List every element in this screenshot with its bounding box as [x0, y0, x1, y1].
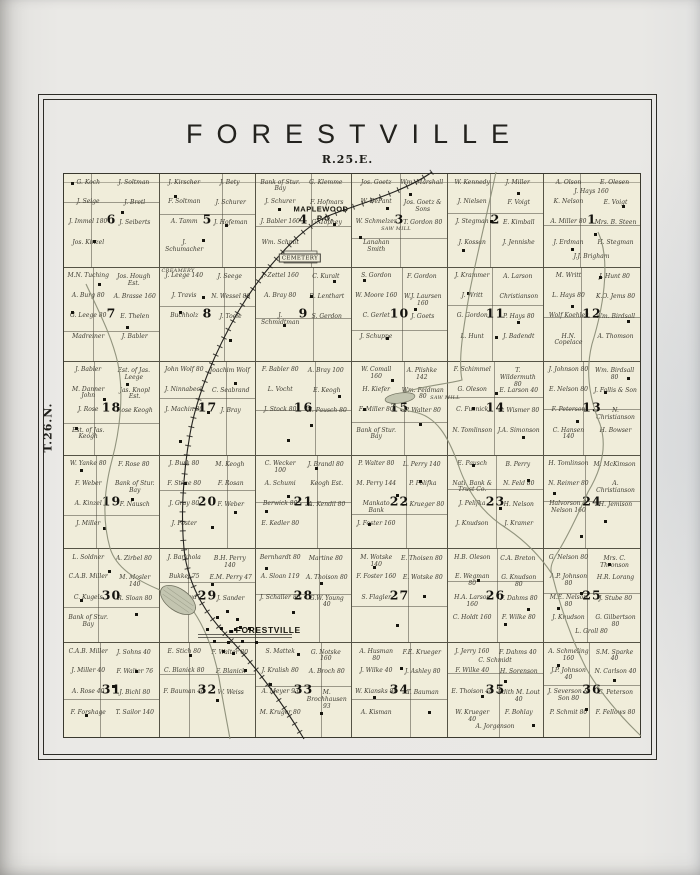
section-cell-32[interactable]: 32E. Stich 80F. Walter 80C. Blanick 80F.…: [160, 643, 256, 737]
section-cell-13[interactable]: 13J. Johnson 80Wm. Birdsall 80E. Nelson …: [544, 362, 640, 456]
landowner-label: Jos. Hough Est.: [112, 274, 155, 287]
parcel-line: [448, 397, 543, 398]
building-marker: [571, 248, 574, 251]
landowner-label: C. Schmidt: [474, 658, 517, 665]
section-cell-24[interactable]: 24H. TomlinsonM. McKimsonN. Reimer 80A. …: [544, 456, 640, 550]
building-marker: [126, 326, 129, 329]
landowner-label: A.P. Johnson 80: [547, 574, 590, 587]
parcel-line: [64, 423, 159, 424]
building-marker: [428, 711, 431, 714]
landowner-label: J. Babler 160: [259, 219, 302, 226]
section-number: 21: [294, 493, 313, 508]
parcel-line: [352, 330, 447, 331]
landowner-label: P. Polifka: [401, 481, 444, 488]
building-marker: [467, 292, 470, 295]
landowner-label: Bukkel 75: [163, 574, 206, 581]
section-number: 8: [203, 306, 213, 321]
parcel-line: [160, 490, 255, 491]
building-marker: [368, 523, 371, 526]
section-cell-34[interactable]: 34A. Husman 80F.E. KruegerJ. Wilke 40J. …: [352, 643, 448, 737]
building-marker: [202, 296, 205, 299]
landowner-label: A. Schumi: [259, 481, 302, 488]
landowner-label: Bernhardt 80: [259, 555, 302, 562]
landowner-label: L. Vocht: [259, 387, 302, 394]
building-marker: [338, 395, 341, 398]
landowner-label: J. Brandl 80: [304, 462, 347, 469]
landowner-label: J. Krammer: [451, 273, 494, 280]
section-number: 6: [107, 212, 117, 227]
landowner-label: F. Soltman: [163, 199, 206, 206]
landowner-label: A. Plishke 142: [400, 368, 443, 381]
landowner-label: J. Hays 160: [570, 189, 613, 196]
poi-label-forestville: FORESTVILLE: [229, 625, 301, 635]
landowner-label: C.A.B. Miller: [67, 649, 110, 656]
landowner-label: J. Ninnabeck: [163, 387, 206, 394]
landowner-label: F. Rosan: [209, 481, 252, 488]
landowner-label: M. Kruger 80: [259, 710, 302, 717]
landowner-label: F. Babler 80: [259, 367, 302, 374]
landowner-label: M. Keogh: [208, 462, 251, 469]
landowner-label: J. Seige: [67, 199, 110, 206]
landowner-label: J.P. Johnson 40: [547, 668, 590, 681]
building-marker: [85, 714, 88, 717]
landowner-label: J. Immel 180: [67, 219, 110, 226]
landowner-label: G. Klemme: [304, 180, 347, 187]
section-number: 13: [582, 399, 601, 414]
section-number: 32: [198, 681, 217, 696]
section-cell-8[interactable]: 8J. Leege 140J. SeegeJ. TravisN. Wessel …: [160, 268, 256, 362]
landowner-label: W. Yanke 80: [67, 461, 110, 468]
building-marker: [265, 567, 268, 570]
landowner-label: E. Nelson 80: [547, 387, 590, 394]
section-number: 4: [299, 212, 309, 227]
building-marker: [283, 324, 286, 327]
building-marker: [179, 311, 182, 314]
landowner-label: A. Schmeling 160: [547, 649, 590, 662]
building-marker: [409, 193, 412, 196]
landowner-label: Mrs. B. Steen: [594, 220, 637, 227]
section-cell-36[interactable]: 36A. Schmeling 160S.M. Sparke 40J.P. Joh…: [544, 643, 640, 737]
landowner-label: H.R. Lorang: [594, 575, 637, 582]
landowner-label: Bank of Stur. Bay: [67, 615, 110, 628]
landowner-label: F. Wilke 80: [497, 615, 540, 622]
section-cell-15[interactable]: 15W. Comall 160A. Plishke 142H. KieferWm…: [352, 362, 448, 456]
building-marker: [75, 427, 78, 430]
landowner-label: J. Hofeman: [209, 220, 252, 227]
landowner-label: F.E. Krueger: [400, 650, 443, 657]
section-number: 36: [582, 681, 601, 696]
landowner-label: C. Blanick 80: [163, 668, 206, 675]
township-label: T.26.N.: [42, 393, 55, 463]
landowner-label: W. Kennedy: [451, 180, 494, 187]
landowner-label: W. Moore 160: [355, 293, 398, 300]
building-marker: [80, 599, 83, 602]
landowner-label: J. Ashley 80: [401, 669, 444, 676]
section-cell-20[interactable]: 20J. Burk 80M. KeoghF. Stilze 80F. Rosan…: [160, 456, 256, 550]
landowner-label: M. Writt: [547, 273, 590, 280]
building-marker: [71, 182, 74, 185]
building-marker: [80, 469, 83, 472]
landowner-label: E.M. Perry 47: [209, 575, 252, 582]
landowner-label: L. Groll 80: [570, 629, 613, 636]
landowner-label: E. Wotske 80: [401, 575, 444, 582]
building-marker: [396, 624, 399, 627]
building-marker: [320, 712, 323, 715]
building-marker: [184, 482, 187, 485]
section-cell-3[interactable]: 3Jos. GoetzWm. MarshallW. DeFantJos. Goe…: [352, 174, 448, 268]
building-marker: [225, 224, 228, 227]
landowner-label: N. Carlson 40: [594, 669, 637, 676]
building-marker: [580, 535, 583, 538]
parcel-line: [64, 331, 159, 332]
landowner-label: T. Sailor 140: [113, 710, 156, 717]
landowner-label: F. Voigt: [497, 200, 540, 207]
building-marker: [472, 464, 475, 467]
section-cell-14[interactable]: 14F. SchimmelT. Wildermuth 80G. OlesonE.…: [448, 362, 544, 456]
landowner-label: A. Bray 100: [304, 368, 347, 375]
landowner-label: H.N. Copelace: [547, 334, 590, 347]
building-marker: [481, 695, 484, 698]
landowner-label: M. Perry 144: [355, 481, 398, 488]
landowner-label: F. Schimmel: [451, 367, 494, 374]
landowner-label: S. Mattek: [259, 649, 302, 656]
building-marker: [211, 583, 214, 586]
section-cell-25[interactable]: 25G. Nelson 80Mrs. C. ThronsonA.P. Johns…: [544, 549, 640, 643]
landowner-label: Mrs. C. Thronson: [593, 556, 636, 569]
section-number: 25: [582, 587, 601, 602]
building-marker: [287, 495, 290, 498]
landowner-label: J. Toele: [209, 314, 252, 321]
landowner-label: M. McKimson: [593, 462, 636, 469]
building-marker: [495, 336, 498, 339]
section-cell-2[interactable]: 2W. KennedyJ. MillerJ. NielsenF. VoigtJ.…: [448, 174, 544, 268]
building-marker: [532, 724, 535, 727]
landowner-label: Bank of Stur. Bay: [259, 180, 302, 193]
parcel-line: [352, 422, 447, 423]
landowner-label: C. Kuralt: [304, 274, 347, 281]
section-number: 5: [203, 212, 213, 227]
building-marker: [627, 377, 630, 380]
landowner-label: A. Larson: [496, 274, 539, 281]
landowner-label: E. Keogh: [305, 388, 348, 395]
landowner-label: A. Tamm: [163, 219, 206, 226]
section-number: 9: [299, 306, 309, 321]
building-marker: [419, 480, 422, 483]
landowner-label: F. Weber: [67, 481, 110, 488]
landowner-label: J. Stegman: [451, 219, 494, 226]
building-marker: [386, 337, 389, 340]
landowner-label: S.M. Sparke 40: [593, 650, 636, 663]
landowner-label: E. Kedler 80: [259, 521, 302, 528]
landowner-label: A. Olson: [547, 180, 590, 187]
building-marker: [557, 664, 560, 667]
landowner-label: W. DeFant: [355, 199, 398, 206]
building-marker: [517, 321, 520, 324]
landowner-label: Buchholz: [163, 313, 206, 320]
landowner-label: C.A. Breton: [496, 556, 539, 563]
landowner-label: A. Bray 80: [259, 293, 302, 300]
section-cell-12[interactable]: 12M. WrittJ. Hunt 80L. Hays 80K.O. Jems …: [544, 268, 640, 362]
landowner-label: J. Knudson: [451, 521, 494, 528]
map-title: FORESTVILLE: [39, 119, 656, 150]
landowner-label: K.O. Jems 80: [594, 294, 637, 301]
building-marker: [315, 467, 318, 470]
section-cell-7[interactable]: 7M.N. TuchingJos. Hough Est.A. Burg 80A.…: [64, 268, 160, 362]
building-marker: [174, 195, 177, 198]
landowner-label: E. Kimball: [497, 220, 540, 227]
building-marker: [585, 708, 588, 711]
landowner-label: J. Schmidtman: [259, 313, 302, 326]
landowner-label: J. Seiberts: [113, 220, 156, 227]
landowner-label: W. Krueger 40: [451, 710, 494, 723]
landowner-label: J. Zettel 160: [259, 273, 302, 280]
landowner-label: J. Kirscher: [163, 180, 206, 187]
building-marker: [320, 582, 323, 585]
landowner-label: F. Foster 160: [355, 574, 398, 581]
building-marker: [126, 383, 129, 386]
section-cell-9[interactable]: 9J. Zettel 160C. KuraltA. Bray 80R. Lent…: [256, 268, 352, 362]
scanned-atlas-page: FORESTVILLE R.25.E. T.26.N. 6G. KochJ. S…: [0, 0, 700, 875]
landowner-label: F. Dahms 40: [496, 650, 539, 657]
section-cell-19[interactable]: 19W. Yanke 80F. Rose 80F. WeberBank of S…: [64, 456, 160, 550]
poi-label-saw-mill: SAW MILL: [430, 395, 460, 401]
building-marker: [594, 233, 597, 236]
landowner-label: J. Badendt: [497, 334, 540, 341]
landowner-label: F. Fellows 80: [594, 710, 637, 717]
landowner-label: L. Hays 80: [547, 293, 590, 300]
building-marker: [517, 192, 520, 195]
building-marker: [576, 420, 579, 423]
building-marker: [359, 236, 362, 239]
landowner-label: E. Stich 80: [163, 649, 206, 656]
landowner-label: A. Kisman: [355, 710, 398, 717]
section-cell-1[interactable]: 1A. OlsonE. OlesenK. NelsonE. VoigtA. Mi…: [544, 174, 640, 268]
section-cell-17[interactable]: 17John Wolf 80Joachim WolfJ. NinnabeckC.…: [160, 362, 256, 456]
building-marker: [292, 611, 295, 614]
landowner-label: Martine 80: [304, 556, 347, 563]
section-cell-23[interactable]: 23E. PauschB. PerryNatl. Bank & Trust Co…: [448, 456, 544, 550]
building-marker: [189, 654, 192, 657]
building-marker: [571, 305, 574, 308]
landowner-label: Wm. Schmit: [259, 240, 302, 247]
landowner-label: J. Schuppe: [355, 334, 398, 341]
building-marker: [495, 392, 498, 395]
landowner-label: J. Kralish 80: [259, 668, 302, 675]
section-number: 26: [486, 587, 505, 602]
landowner-label: B.H. Perry 140: [208, 556, 251, 569]
section-number: 10: [390, 306, 409, 321]
landowner-label: J. Barkhola: [163, 555, 206, 562]
landowner-label: J. Jerry 160: [451, 649, 494, 656]
section-cell-5[interactable]: 5J. KirscherJ. BetyF. SoltmanJ. SchurerA…: [160, 174, 256, 268]
building-marker: [599, 276, 602, 279]
landowner-label: N. Wessel 80: [209, 294, 252, 301]
landowner-label: G. Gilbertson 80: [594, 615, 637, 628]
landowner-label: A. Miller 80: [547, 219, 590, 226]
section-number: 15: [390, 399, 409, 414]
parcel-line: [352, 606, 447, 607]
landowner-label: J. Schumacher: [163, 240, 206, 253]
building-marker: [310, 295, 313, 298]
building-marker: [103, 527, 106, 530]
landowner-label: J. Bety: [208, 180, 251, 187]
section-cell-18[interactable]: 18J. BablerEst. of Jas. LeegeM. Danner J…: [64, 362, 160, 456]
landowner-label: J. Miller: [496, 180, 539, 187]
landowner-label: Bank of Stur. Bay: [355, 428, 398, 441]
poi-label-saw-mill: SAW MILL: [381, 226, 411, 232]
landowner-label: A. Husman 80: [355, 649, 398, 662]
landowner-label: H. Kiefer: [355, 387, 398, 394]
landowner-label: E. Thelen: [113, 314, 156, 321]
building-marker: [202, 239, 205, 242]
section-cell-30[interactable]: 30L. SoldnerA. Zirbel 80C.A.B. MillerM. …: [64, 549, 160, 643]
landowner-label: E. Thoisen 80: [400, 556, 443, 563]
landowner-label: John Wolf 80: [163, 367, 206, 374]
landowner-label: J. Leege 140: [163, 273, 206, 280]
landowner-label: Wm. Birdsall 80: [593, 368, 636, 381]
landowner-label: Lanahan Smith: [355, 240, 398, 253]
landowner-label: H. Sorenson: [497, 669, 540, 676]
landowner-label: J. Schurer: [209, 200, 252, 207]
section-number: 2: [491, 212, 501, 227]
building-marker: [297, 653, 300, 656]
building-marker: [414, 308, 417, 311]
section-cell-33[interactable]: 33S. MattekG. Notske 160J. Kralish 80A. …: [256, 643, 352, 737]
poi-label-p-o-: P.O.: [317, 214, 333, 223]
section-cell-31[interactable]: 31C.A.B. MillerJ. Sohns 40J. Miller 40F.…: [64, 643, 160, 737]
landowner-label: J. Kramer: [497, 521, 540, 528]
landowner-label: K. Nelson: [547, 199, 590, 206]
section-number: 3: [395, 212, 405, 227]
landowner-label: G. Notske 160: [304, 650, 347, 663]
poi-label-cemetery: CEMETERY: [279, 254, 321, 263]
section-number: 34: [390, 681, 409, 696]
section-cell-35[interactable]: 35J. Jerry 160F. Dahms 40F. Wilke 40H. S…: [448, 643, 544, 737]
landowner-label: J. Knudson: [547, 615, 590, 622]
section-number: 28: [294, 587, 313, 602]
landowner-label: G. Oleson: [451, 387, 494, 394]
building-marker: [627, 320, 630, 323]
map-plate: FORESTVILLE R.25.E. T.26.N. 6G. KochJ. S…: [38, 94, 657, 760]
building-marker: [504, 623, 507, 626]
parcel-line: [160, 398, 255, 399]
landowner-label: Keogh Est.: [305, 481, 348, 488]
poi-label-creamery: CREAMERY: [162, 268, 195, 274]
building-marker: [608, 563, 611, 566]
landowner-label: J. Bretl: [113, 200, 156, 207]
landowner-label: F. Rose 80: [112, 462, 155, 469]
parcel-line: [64, 607, 159, 608]
landowner-label: A. Zirbel 80: [112, 556, 155, 563]
building-marker: [93, 240, 96, 243]
section-number: 24: [582, 493, 601, 508]
landowner-label: F. Wilke 40: [451, 668, 494, 675]
building-marker: [553, 492, 556, 495]
section-number: 14: [486, 399, 505, 414]
section-number: 33: [294, 681, 313, 696]
building-marker: [333, 280, 336, 283]
landowner-label: Natl. Bank & Trust Co.: [451, 481, 494, 494]
building-marker: [278, 208, 281, 211]
landowner-label: L. Perry 140: [400, 462, 443, 469]
section-cell-22[interactable]: 22P. Walter 80L. Perry 140M. Perry 144P.…: [352, 456, 448, 550]
building-marker: [622, 205, 625, 208]
building-marker: [527, 608, 530, 611]
building-marker: [216, 699, 219, 702]
landowner-label: J. Sohns 40: [112, 650, 155, 657]
landowner-label: C. Hansen 140: [547, 428, 590, 441]
building-marker: [265, 510, 268, 513]
building-marker: [135, 670, 138, 673]
building-marker: [373, 696, 376, 699]
landowner-label: J. Seege: [208, 274, 251, 281]
building-marker: [310, 424, 313, 427]
landowner-label: A. Burg 80: [67, 293, 110, 300]
building-marker: [557, 607, 560, 610]
landowner-label: E. Olesen: [593, 180, 636, 187]
landowner-label: Wm. Marshall: [400, 180, 443, 187]
building-marker: [472, 407, 475, 410]
section-number: 18: [102, 399, 121, 414]
section-number: 17: [198, 399, 217, 414]
landowner-label: B. Perry: [496, 462, 539, 469]
landowner-label: M.N. Tuching: [67, 273, 110, 280]
section-cell-21[interactable]: 21C. Wecker 100J. Brandl 80A. SchumiKeog…: [256, 456, 352, 550]
section-cell-10[interactable]: 10S. GordonF. GordonW. Moore 160W.J. Lau…: [352, 268, 448, 362]
section-number: 20: [198, 493, 217, 508]
building-marker: [189, 598, 192, 601]
landowner-label: A. Jorgenson: [474, 724, 517, 731]
landowner-label: J. Johnson 80: [547, 367, 590, 374]
landowner-label: N. Feld 80: [497, 481, 540, 488]
building-marker: [131, 498, 134, 501]
landowner-label: N. Tomlinson: [451, 428, 494, 435]
landowner-label: Est. of Jas. Keogh: [67, 428, 110, 441]
landowner-label: Christianson: [497, 294, 540, 301]
section-number: 1: [587, 212, 597, 227]
building-marker: [234, 511, 237, 514]
range-label: R.25.E.: [39, 153, 656, 166]
landowner-label: A. Thoison 80: [305, 575, 348, 582]
landowner-label: H. Stegman: [594, 240, 637, 247]
building-marker: [98, 283, 101, 286]
building-marker: [613, 679, 616, 682]
section-cell-11[interactable]: 11J. KrammerA. LarsonJ. WrittChristianso…: [448, 268, 544, 362]
landowner-label: F. Gordon: [400, 274, 443, 281]
building-marker: [604, 391, 607, 394]
landowner-label: S. Gordon: [355, 273, 398, 280]
section-cell-26[interactable]: 26H.B. OlesonC.A. BretonE. Wegman 80G. K…: [448, 549, 544, 643]
section-cell-27[interactable]: 27M. Wotske 140E. Thoisen 80F. Foster 16…: [352, 549, 448, 643]
building-marker: [244, 669, 247, 672]
landowner-label: J.A. Simonson: [497, 428, 540, 435]
landowner-label: N. Reimer 80: [547, 481, 590, 488]
section-cell-6[interactable]: 6G. KochJ. SoltmanJ. SeigeJ. BretlJ. Imm…: [64, 174, 160, 268]
section-number: 11: [486, 306, 505, 321]
landowner-label: M. Wotske 140: [355, 555, 398, 568]
parcel-line: [352, 699, 447, 700]
poi-label-maplewood: MAPLEWOOD: [294, 205, 349, 214]
landowner-label: A. Sloan 119: [259, 574, 302, 581]
section-cell-16[interactable]: 16F. Babler 80A. Bray 100L. VochtE. Keog…: [256, 362, 352, 456]
landowner-label: Madreiner: [67, 334, 110, 341]
building-marker: [108, 570, 111, 573]
building-marker: [400, 667, 403, 670]
landowner-label: E. Wegman 80: [451, 574, 494, 587]
landowner-label: J. Miller 40: [67, 668, 110, 675]
building-marker: [386, 207, 389, 210]
section-number: 22: [390, 493, 409, 508]
